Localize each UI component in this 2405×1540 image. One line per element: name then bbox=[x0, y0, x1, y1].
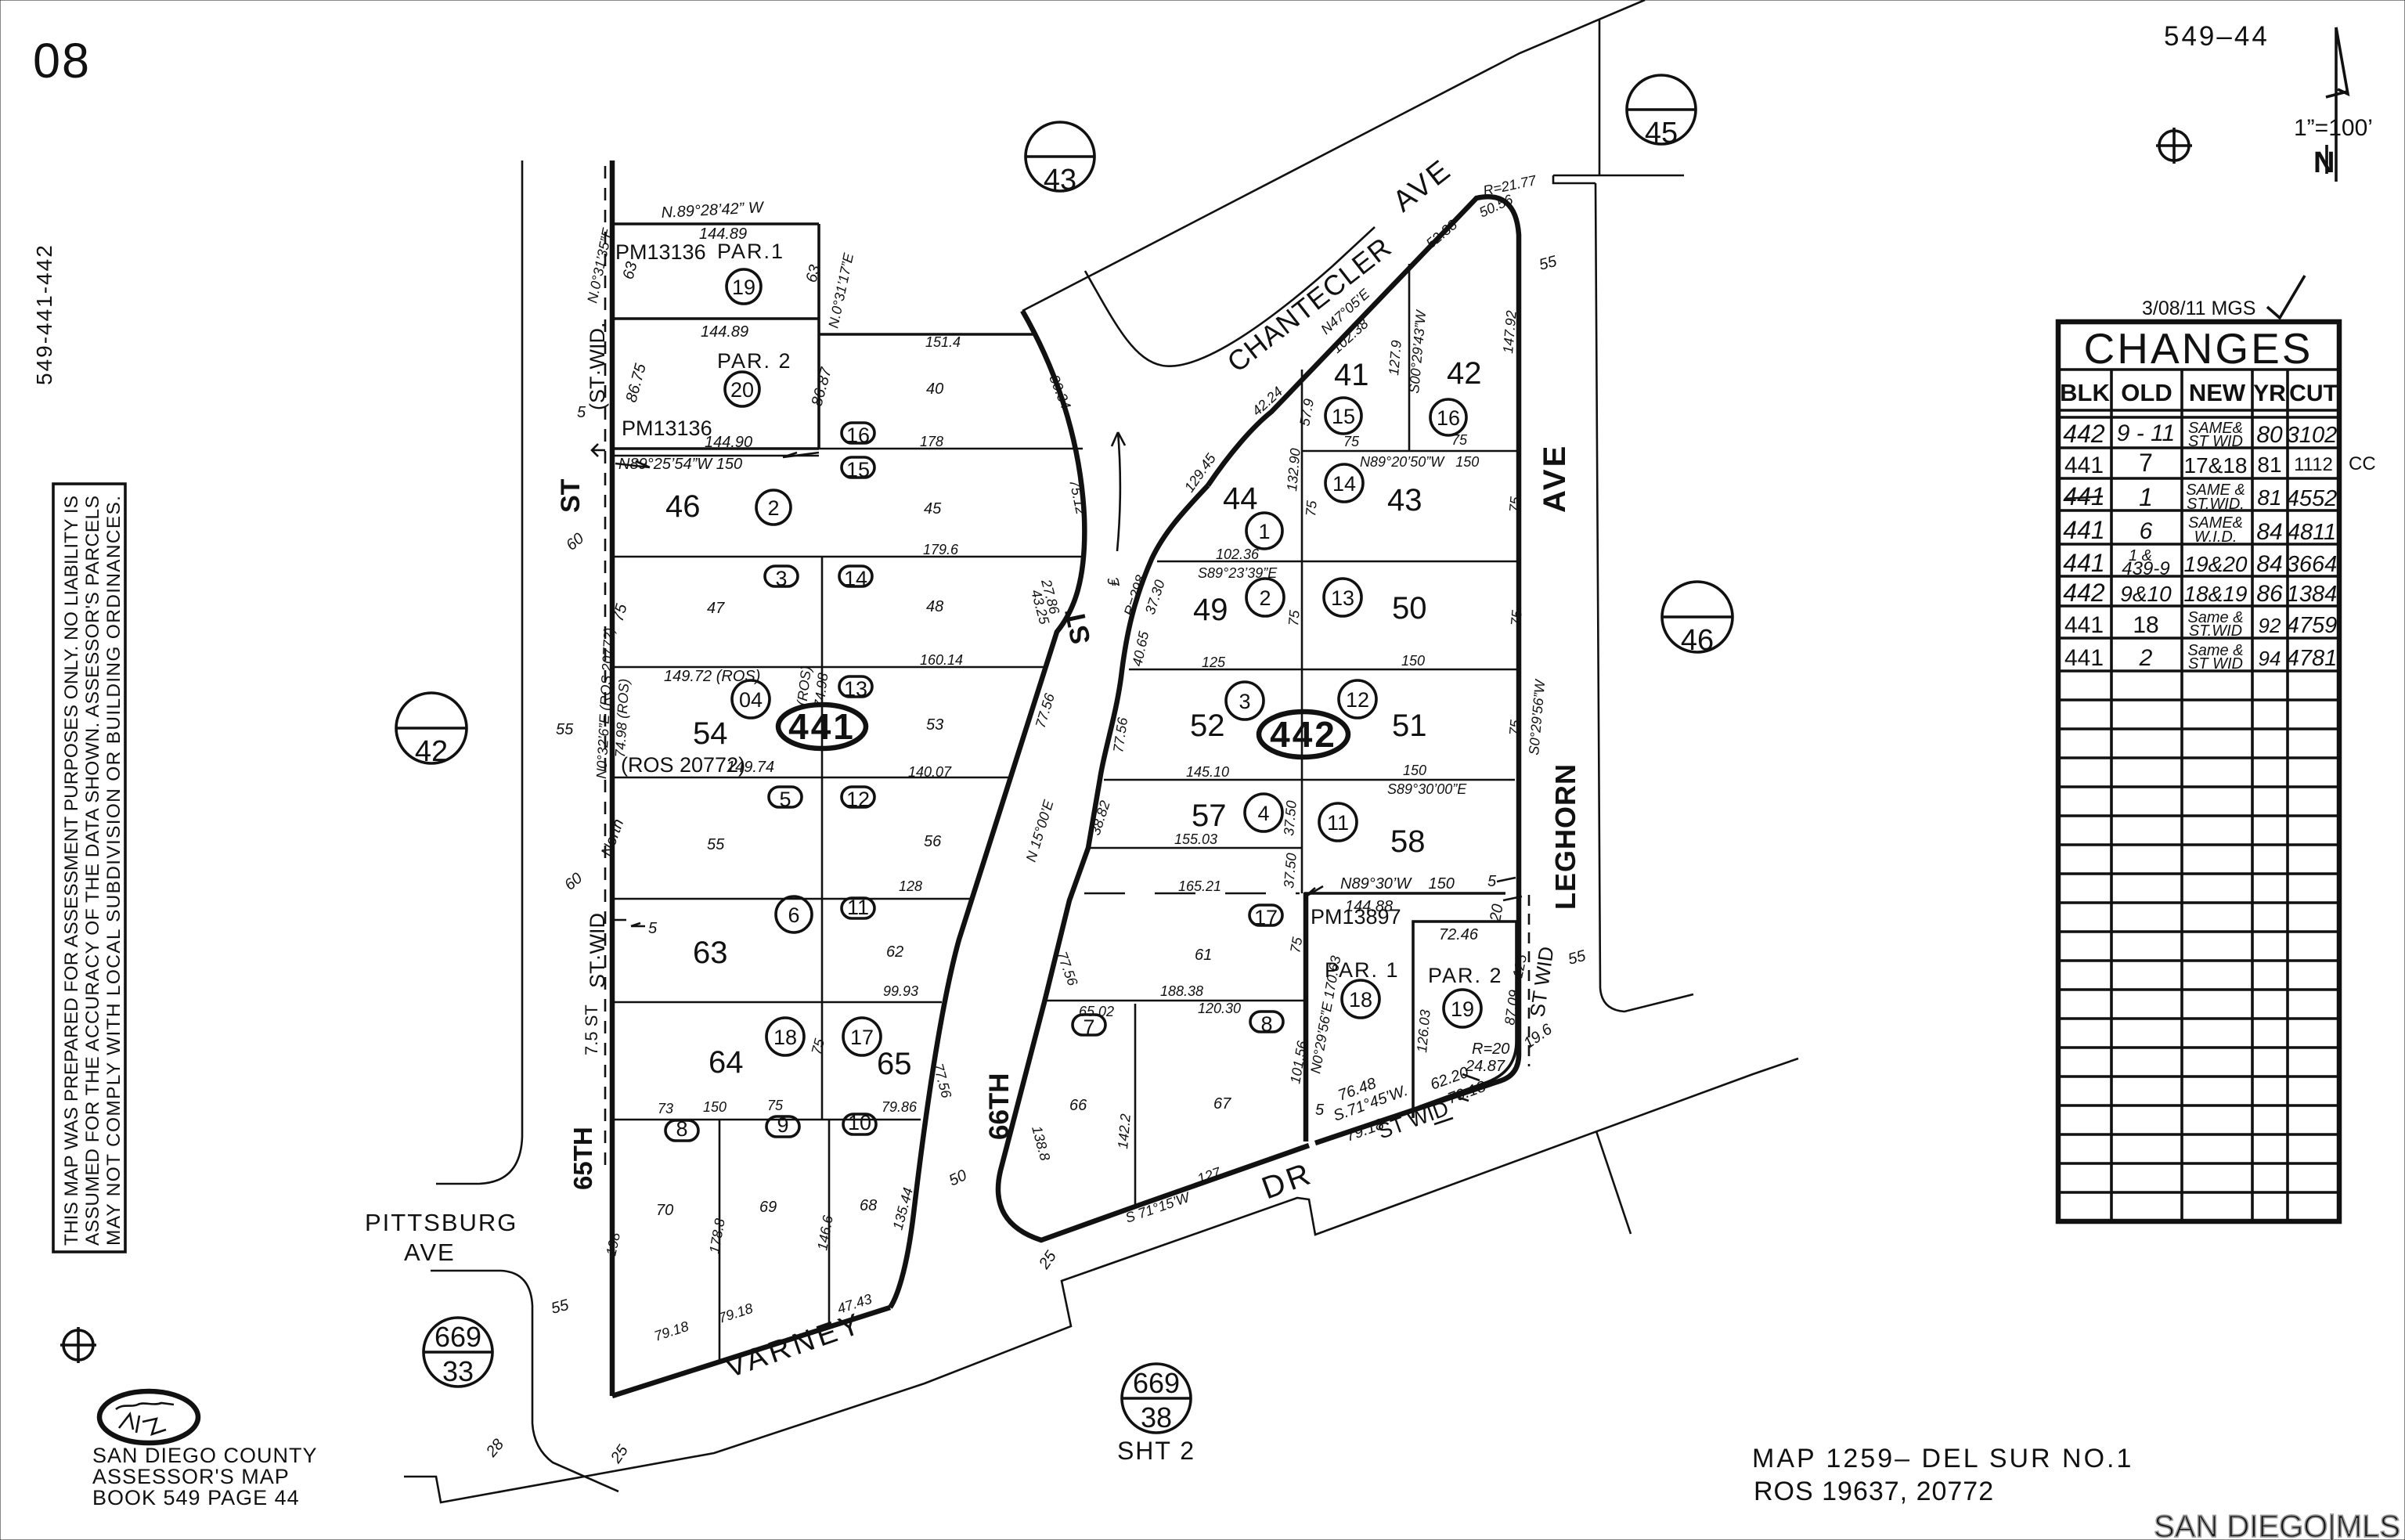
svg-text:549–44: 549–44 bbox=[2164, 21, 2270, 52]
svg-text:AVE: AVE bbox=[1387, 153, 1459, 218]
svg-text:126.03: 126.03 bbox=[1414, 1009, 1433, 1054]
svg-text:12: 12 bbox=[846, 788, 870, 811]
svg-text:N0°29’56”E 170.63: N0°29’56”E 170.63 bbox=[1307, 954, 1343, 1074]
svg-text:145.10: 145.10 bbox=[1186, 764, 1229, 780]
svg-text:75: 75 bbox=[1506, 496, 1523, 514]
svg-text:3: 3 bbox=[775, 567, 787, 590]
svg-text:81: 81 bbox=[2257, 453, 2281, 477]
svg-text:441: 441 bbox=[788, 706, 856, 747]
svg-text:AVE: AVE bbox=[1538, 444, 1572, 513]
svg-text:ST.WID.: ST.WID. bbox=[2187, 496, 2245, 513]
svg-text:120.30: 120.30 bbox=[1198, 1001, 1241, 1016]
svg-text:2: 2 bbox=[2139, 645, 2153, 671]
svg-text:66: 66 bbox=[1069, 1097, 1087, 1114]
svg-text:20: 20 bbox=[1487, 903, 1507, 924]
svg-text:5: 5 bbox=[1315, 1102, 1325, 1119]
svg-text:17: 17 bbox=[1254, 906, 1278, 929]
svg-text:51: 51 bbox=[1392, 709, 1427, 743]
svg-text:4781: 4781 bbox=[2287, 646, 2338, 671]
svg-text:86.75: 86.75 bbox=[623, 361, 650, 404]
svg-text:18: 18 bbox=[773, 1026, 797, 1049]
svg-text:12: 12 bbox=[1346, 688, 1369, 712]
svg-text:4759: 4759 bbox=[2287, 613, 2338, 638]
svg-text:4552: 4552 bbox=[2287, 486, 2338, 511]
svg-text:41: 41 bbox=[1334, 358, 1369, 392]
svg-text:140.07: 140.07 bbox=[908, 764, 952, 780]
svg-text:3: 3 bbox=[1239, 690, 1250, 713]
svg-text:79.86: 79.86 bbox=[882, 1099, 918, 1115]
svg-text:5: 5 bbox=[1487, 873, 1497, 890]
svg-text:57.9: 57.9 bbox=[1296, 398, 1317, 427]
svg-text:6: 6 bbox=[788, 903, 799, 927]
svg-text:9&10: 9&10 bbox=[2120, 582, 2172, 606]
svg-text:138.8: 138.8 bbox=[1029, 1124, 1053, 1163]
svg-text:1112: 1112 bbox=[2294, 454, 2333, 475]
svg-text:PAR.1: PAR.1 bbox=[717, 240, 784, 263]
svg-text:ST WID: ST WID bbox=[1525, 945, 1558, 1019]
svg-text:13: 13 bbox=[1331, 586, 1354, 610]
svg-text:150: 150 bbox=[703, 1099, 727, 1115]
svg-text:ST WID: ST WID bbox=[2188, 433, 2243, 450]
svg-text:5: 5 bbox=[779, 788, 791, 811]
svg-text:PM13136: PM13136 bbox=[622, 417, 712, 440]
svg-text:14: 14 bbox=[844, 567, 867, 590]
svg-text:9 - 11: 9 - 11 bbox=[2117, 420, 2176, 446]
svg-text:55: 55 bbox=[550, 1297, 572, 1318]
svg-text:CC: CC bbox=[2349, 453, 2376, 474]
svg-text:ASSESSOR'S MAP: ASSESSOR'S MAP bbox=[92, 1465, 290, 1488]
svg-text:BOOK 549 PAGE 44: BOOK 549 PAGE 44 bbox=[92, 1486, 300, 1509]
svg-text:38: 38 bbox=[1141, 1401, 1172, 1434]
svg-text:16: 16 bbox=[846, 424, 870, 447]
svg-text:84: 84 bbox=[2256, 551, 2282, 577]
svg-text:ST WID: ST WID bbox=[2188, 655, 2243, 673]
svg-text:155.03: 155.03 bbox=[1174, 831, 1217, 847]
svg-text:144.89: 144.89 bbox=[701, 323, 748, 341]
svg-text:7.5 ST: 7.5 ST bbox=[582, 1004, 601, 1055]
svg-text:75: 75 bbox=[610, 601, 631, 623]
svg-text:PITTSBURG: PITTSBURG bbox=[365, 1209, 517, 1236]
svg-text:128: 128 bbox=[899, 878, 922, 894]
svg-text:57: 57 bbox=[1192, 799, 1227, 833]
svg-text:63: 63 bbox=[693, 936, 728, 970]
svg-text:38.82: 38.82 bbox=[1087, 799, 1113, 837]
svg-text:N.89°28’42” W: N.89°28’42” W bbox=[661, 199, 765, 222]
svg-text:125: 125 bbox=[1509, 952, 1530, 979]
svg-text:2: 2 bbox=[1259, 586, 1271, 610]
svg-text:13: 13 bbox=[844, 677, 867, 701]
svg-text:75: 75 bbox=[1343, 434, 1360, 449]
svg-text:₤: ₤ bbox=[1105, 575, 1123, 589]
svg-text:S89°30’00”E: S89°30’00”E bbox=[1387, 781, 1467, 797]
svg-text:OLD: OLD bbox=[2121, 379, 2172, 406]
svg-text:11: 11 bbox=[847, 896, 869, 919]
svg-text:R=20: R=20 bbox=[1472, 1040, 1509, 1058]
svg-text:42: 42 bbox=[1447, 356, 1482, 391]
svg-text:79.18: 79.18 bbox=[716, 1300, 755, 1326]
svg-text:MAY NOT COMPLY WITH LOCAL: MAY NOT COMPLY WITH LOCAL SUBDIVISION OR… bbox=[103, 496, 124, 1246]
svg-text:75: 75 bbox=[767, 1098, 784, 1113]
svg-text:SAN DIEGO|MLS: SAN DIEGO|MLS bbox=[2154, 1509, 2400, 1540]
svg-text:50: 50 bbox=[946, 1167, 969, 1189]
svg-text:129.45: 129.45 bbox=[1181, 450, 1220, 495]
svg-text:37.50: 37.50 bbox=[1281, 800, 1300, 837]
svg-text:64: 64 bbox=[709, 1045, 744, 1080]
svg-text:198: 198 bbox=[603, 1231, 623, 1257]
svg-text:NEW: NEW bbox=[2189, 379, 2246, 406]
svg-text:67: 67 bbox=[1213, 1095, 1231, 1113]
svg-text:ST·WID: ST·WID bbox=[586, 913, 609, 988]
svg-text:70: 70 bbox=[656, 1202, 673, 1219]
svg-text:43: 43 bbox=[1387, 483, 1422, 518]
svg-text:1”=100’: 1”=100’ bbox=[2294, 115, 2373, 141]
svg-text:441: 441 bbox=[2063, 549, 2104, 577]
svg-text:75: 75 bbox=[1285, 609, 1303, 627]
svg-text:149.72 (ROS): 149.72 (ROS) bbox=[664, 668, 760, 685]
svg-text:188.38: 188.38 bbox=[1160, 983, 1203, 999]
svg-text:53: 53 bbox=[926, 716, 943, 734]
svg-text:42: 42 bbox=[415, 735, 448, 768]
svg-text:49: 49 bbox=[1193, 593, 1228, 627]
svg-text:PAR. 2: PAR. 2 bbox=[1428, 964, 1503, 987]
svg-text:441: 441 bbox=[2064, 645, 2104, 671]
svg-text:6: 6 bbox=[2140, 518, 2153, 544]
svg-text:127.9: 127.9 bbox=[1386, 340, 1404, 377]
svg-text:10: 10 bbox=[848, 1111, 871, 1134]
svg-text:55: 55 bbox=[1538, 253, 1559, 274]
svg-text:18&19: 18&19 bbox=[2184, 582, 2248, 606]
svg-text:442: 442 bbox=[1270, 714, 1337, 755]
svg-text:40.65: 40.65 bbox=[1129, 629, 1152, 668]
svg-text:N89°25’54”W 150: N89°25’54”W 150 bbox=[618, 456, 742, 473]
svg-text:5: 5 bbox=[577, 404, 586, 421]
svg-text:151.4: 151.4 bbox=[925, 334, 961, 350]
svg-text:75: 75 bbox=[809, 1037, 828, 1056]
svg-text:77.56: 77.56 bbox=[1054, 950, 1081, 989]
svg-text:PAR. 2: PAR. 2 bbox=[717, 349, 792, 373]
svg-text:65: 65 bbox=[877, 1047, 912, 1081]
svg-text:CHANGES: CHANGES bbox=[2084, 324, 2313, 373]
svg-text:16: 16 bbox=[1437, 406, 1460, 430]
svg-text:80: 80 bbox=[2256, 422, 2283, 448]
svg-text:80.34: 80.34 bbox=[1046, 373, 1073, 411]
svg-text:54: 54 bbox=[693, 716, 728, 751]
svg-text:73: 73 bbox=[658, 1101, 673, 1116]
svg-text:4811: 4811 bbox=[2288, 520, 2336, 545]
svg-text:15: 15 bbox=[846, 458, 870, 481]
svg-text:56: 56 bbox=[924, 833, 942, 850]
svg-text:S 71°15’W: S 71°15’W bbox=[1123, 1188, 1193, 1225]
svg-text:18: 18 bbox=[2133, 612, 2158, 638]
svg-text:75: 75 bbox=[1451, 432, 1468, 448]
svg-text:75: 75 bbox=[1303, 500, 1320, 518]
svg-text:37.50: 37.50 bbox=[1281, 853, 1300, 889]
svg-text:55: 55 bbox=[707, 836, 725, 853]
svg-text:66TH: 66TH bbox=[984, 1073, 1015, 1140]
svg-text:25: 25 bbox=[608, 1441, 633, 1466]
svg-text:19: 19 bbox=[1451, 997, 1474, 1021]
svg-text:N89°30’W 150: N89°30’W 150 bbox=[1340, 875, 1455, 893]
svg-text:ROS 19637, 20772: ROS 19637, 20772 bbox=[1754, 1477, 1994, 1506]
svg-text:1: 1 bbox=[2139, 483, 2153, 511]
svg-text:142.2: 142.2 bbox=[1115, 1113, 1134, 1150]
svg-text:149.74: 149.74 bbox=[727, 759, 774, 776]
svg-text:PM13897: PM13897 bbox=[1311, 905, 1401, 929]
svg-text:72.46: 72.46 bbox=[1439, 926, 1479, 943]
svg-text:160.14: 160.14 bbox=[920, 652, 963, 668]
svg-text:3102: 3102 bbox=[2287, 423, 2338, 448]
svg-text:(ST·WID.: (ST·WID. bbox=[586, 323, 609, 410]
svg-text:PM13136: PM13136 bbox=[615, 240, 706, 264]
svg-text:7: 7 bbox=[1083, 1015, 1094, 1039]
svg-text:N89°20’50”W 150: N89°20’50”W 150 bbox=[1360, 454, 1479, 470]
svg-text:BLK: BLK bbox=[2060, 379, 2110, 406]
svg-text:14: 14 bbox=[1332, 472, 1356, 496]
svg-text:55: 55 bbox=[556, 721, 574, 738]
svg-text:LEGHORN: LEGHORN bbox=[1549, 763, 1581, 910]
svg-text:44: 44 bbox=[1223, 481, 1258, 516]
svg-text:81: 81 bbox=[2257, 485, 2281, 510]
svg-text:442: 442 bbox=[2063, 420, 2105, 448]
svg-text:4: 4 bbox=[1257, 802, 1269, 825]
svg-text:AVE: AVE bbox=[404, 1239, 456, 1266]
svg-text:North: North bbox=[598, 817, 627, 858]
svg-text:8: 8 bbox=[676, 1117, 687, 1141]
svg-text:165.21: 165.21 bbox=[1178, 878, 1221, 894]
svg-text:7: 7 bbox=[2139, 449, 2153, 477]
svg-text:86: 86 bbox=[2256, 581, 2283, 607]
svg-text:84: 84 bbox=[2256, 519, 2282, 545]
svg-text:25: 25 bbox=[1036, 1247, 1061, 1272]
svg-text:11: 11 bbox=[1327, 811, 1349, 835]
svg-text:CUT: CUT bbox=[2289, 380, 2338, 406]
svg-text:79.18: 79.18 bbox=[652, 1318, 690, 1344]
svg-text:N.0°31’17”E: N.0°31’17”E bbox=[825, 251, 856, 330]
svg-text:179.6: 179.6 bbox=[923, 542, 959, 557]
svg-text:46: 46 bbox=[665, 489, 701, 524]
svg-text:YR: YR bbox=[2253, 380, 2286, 406]
svg-text:3/08/11 MGS: 3/08/11 MGS bbox=[2142, 298, 2255, 319]
svg-text:150: 150 bbox=[1403, 763, 1426, 778]
svg-text:20: 20 bbox=[730, 378, 754, 402]
svg-text:146.6: 146.6 bbox=[814, 1214, 836, 1252]
svg-text:125: 125 bbox=[1202, 655, 1226, 670]
svg-text:86.87: 86.87 bbox=[809, 365, 835, 408]
svg-text:62: 62 bbox=[886, 943, 903, 961]
svg-text:8: 8 bbox=[1260, 1012, 1272, 1036]
svg-text:40: 40 bbox=[926, 380, 943, 398]
svg-text:47: 47 bbox=[707, 600, 725, 617]
svg-text:THIS MAP WAS PREPARED FOR ASSE: THIS MAP WAS PREPARED FOR ASSESSMENT PUR… bbox=[61, 496, 82, 1246]
svg-text:60: 60 bbox=[561, 870, 586, 894]
svg-text:178: 178 bbox=[920, 434, 943, 449]
svg-text:60: 60 bbox=[563, 530, 587, 554]
svg-text:18: 18 bbox=[1349, 988, 1372, 1012]
svg-text:50: 50 bbox=[1392, 591, 1427, 626]
svg-text:24.87: 24.87 bbox=[1465, 1058, 1505, 1075]
svg-text:75.12: 75.12 bbox=[1066, 478, 1089, 516]
svg-text:127: 127 bbox=[1195, 1164, 1224, 1187]
svg-text:19&20: 19&20 bbox=[2184, 552, 2248, 576]
svg-text:74.98 (ROS): 74.98 (ROS) bbox=[612, 678, 632, 758]
svg-text:17&18: 17&18 bbox=[2184, 453, 2248, 478]
svg-text:3664: 3664 bbox=[2287, 552, 2338, 577]
svg-text:ASSUMED FOR THE ACCURACY OF TH: ASSUMED FOR THE ACCURACY OF THE DATA SHO… bbox=[82, 496, 103, 1246]
svg-text:150: 150 bbox=[1401, 653, 1425, 669]
svg-text:61: 61 bbox=[1195, 947, 1212, 964]
svg-text:W.I.D.: W.I.D. bbox=[2194, 528, 2237, 546]
svg-text:ST.WID: ST.WID bbox=[2189, 622, 2242, 640]
svg-text:1384: 1384 bbox=[2287, 582, 2338, 607]
svg-text:N 15°00’E: N 15°00’E bbox=[1023, 798, 1057, 864]
svg-text:178.8: 178.8 bbox=[706, 1217, 728, 1255]
svg-text:75: 75 bbox=[1506, 719, 1523, 737]
svg-text:65TH: 65TH bbox=[568, 1127, 597, 1190]
svg-text:669: 669 bbox=[434, 1321, 481, 1353]
svg-text:2: 2 bbox=[767, 496, 779, 520]
svg-text:04: 04 bbox=[739, 688, 763, 712]
svg-text:549-441-442: 549-441-442 bbox=[32, 243, 56, 385]
svg-text:SAN DIEGO COUNTY: SAN DIEGO COUNTY bbox=[92, 1444, 318, 1467]
svg-text:68: 68 bbox=[860, 1197, 877, 1214]
svg-text:92: 92 bbox=[2259, 614, 2281, 637]
svg-text:439-9: 439-9 bbox=[2122, 558, 2169, 579]
svg-text:33: 33 bbox=[442, 1355, 474, 1387]
svg-text:75: 75 bbox=[1287, 936, 1305, 954]
svg-text:132.90: 132.90 bbox=[1284, 448, 1303, 492]
svg-text:441: 441 bbox=[2064, 453, 2104, 478]
svg-text:441: 441 bbox=[2064, 612, 2104, 638]
svg-text:08: 08 bbox=[33, 34, 91, 88]
svg-text:S0°29’56”W: S0°29’56”W bbox=[1526, 678, 1548, 756]
svg-text:N: N bbox=[2313, 146, 2335, 179]
svg-text:52: 52 bbox=[1190, 709, 1225, 743]
svg-text:442: 442 bbox=[2063, 579, 2105, 607]
svg-text:441: 441 bbox=[2063, 516, 2104, 544]
svg-text:45: 45 bbox=[1645, 117, 1678, 150]
svg-text:ST: ST bbox=[1059, 607, 1096, 647]
svg-text:19.6: 19.6 bbox=[1520, 1020, 1556, 1052]
svg-text:43: 43 bbox=[1044, 164, 1076, 197]
svg-text:ST: ST bbox=[556, 478, 586, 513]
svg-text:94: 94 bbox=[2259, 647, 2281, 670]
svg-text:102.36: 102.36 bbox=[1216, 546, 1260, 562]
svg-text:1: 1 bbox=[1258, 520, 1270, 543]
svg-text:55: 55 bbox=[1567, 947, 1588, 968]
svg-text:69: 69 bbox=[759, 1199, 777, 1216]
svg-text:77.56: 77.56 bbox=[930, 1062, 954, 1101]
svg-text:75: 75 bbox=[1508, 609, 1525, 627]
svg-text:63: 63 bbox=[803, 263, 824, 284]
svg-text:48: 48 bbox=[926, 598, 943, 615]
svg-text:17: 17 bbox=[850, 1026, 874, 1049]
svg-text:99.93: 99.93 bbox=[883, 983, 918, 999]
svg-text:28: 28 bbox=[482, 1436, 507, 1461]
svg-text:15: 15 bbox=[1332, 405, 1355, 428]
svg-text:46: 46 bbox=[1681, 624, 1714, 657]
svg-text:144.90: 144.90 bbox=[705, 434, 752, 451]
svg-text:45: 45 bbox=[924, 500, 942, 518]
svg-text:58: 58 bbox=[1390, 824, 1426, 859]
svg-text:9: 9 bbox=[777, 1113, 788, 1137]
svg-text:SHT 2: SHT 2 bbox=[1117, 1437, 1195, 1465]
svg-text:5: 5 bbox=[648, 920, 658, 937]
svg-text:19: 19 bbox=[732, 276, 755, 299]
svg-text:669: 669 bbox=[1133, 1367, 1180, 1399]
svg-text:MAP 1259– DEL SUR NO.1: MAP 1259– DEL SUR NO.1 bbox=[1752, 1444, 2133, 1473]
